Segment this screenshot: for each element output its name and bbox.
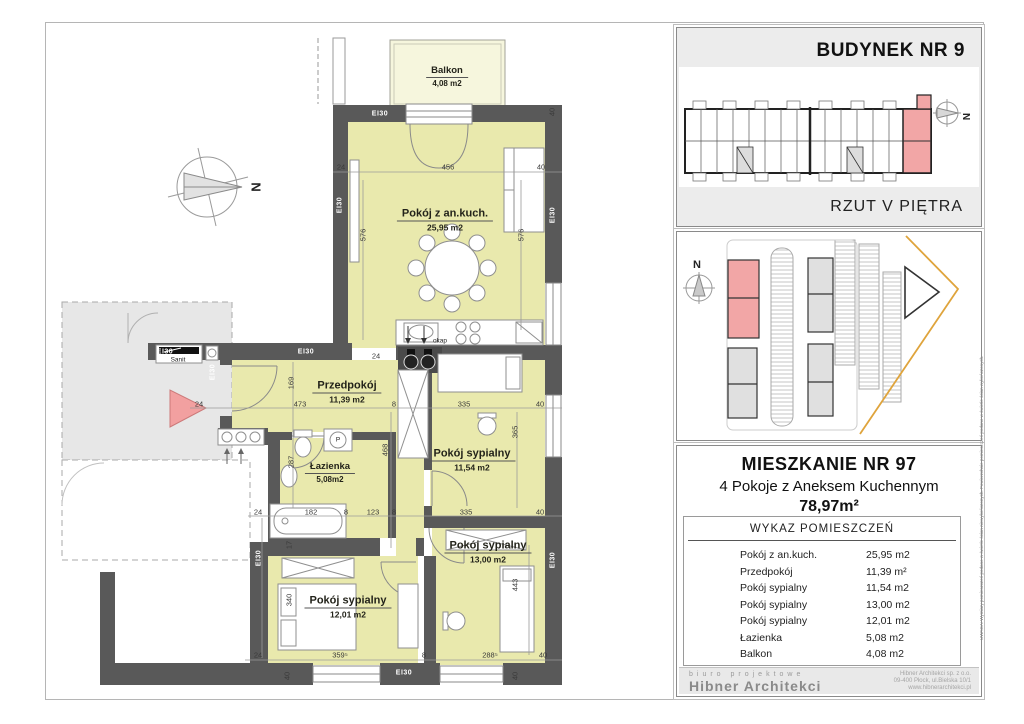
room-schedule-title: WYKAZ POMIESZCZEŃ — [684, 523, 960, 535]
apartment-total-area: 78,97m² — [677, 498, 981, 516]
room-label: Pokój z an.kuch.25,95 m2 — [397, 204, 493, 233]
dimension-label: 169 — [287, 377, 296, 390]
building-panel: BUDYNEK NR 9 — [676, 27, 982, 227]
address-line: www.hibnerarchitekci.pl — [894, 685, 971, 692]
triangle-building — [905, 267, 939, 318]
dimension-label: 335 — [460, 508, 473, 517]
room-label: Pokój sypialny12,01 m2 — [304, 591, 391, 620]
company-footer: biuro projektowe Hibner Architekci Hibne… — [679, 667, 979, 694]
room-row-area: 4,08 m2 — [866, 646, 936, 663]
dimension-label: 40 — [536, 400, 544, 409]
site-plan-thumbnail: N — [677, 232, 979, 438]
table-divider — [688, 540, 956, 541]
annotation-label: okap — [433, 338, 447, 345]
dimension-label: 40 — [283, 672, 292, 680]
room-label: Balkon4,08 m2 — [426, 60, 468, 88]
room-area: 11,54 m2 — [428, 463, 515, 473]
company-tagline: biuro projektowe — [689, 671, 804, 678]
building-plan-thumbnail: N — [679, 67, 979, 187]
room-row: Przedpokój11,39 m² — [684, 564, 960, 581]
dimension-label: 24 — [254, 651, 262, 660]
room-row-area: 11,54 m2 — [866, 580, 936, 597]
annotation-label: P — [336, 437, 340, 444]
room-name: Pokój sypialny — [304, 595, 391, 609]
dimension-label: 335 — [458, 400, 471, 409]
dimension-label: 123 — [367, 508, 380, 517]
apartment-title: MIESZKANIE NR 97 — [677, 454, 981, 475]
dimension-label: 8 — [344, 508, 348, 517]
legal-note-vertical: UWAGA: Wymiary pomieszczeń podano w świe… — [979, 634, 984, 640]
dimension-label: 24 — [337, 163, 345, 172]
dimension-label: 24 — [195, 400, 203, 409]
building-plan-area: N — [679, 67, 979, 187]
room-row: Pokój sypialny11,54 m2 — [684, 580, 960, 597]
dimension-label: 24 — [372, 352, 380, 361]
room-row: Łazienka5,08 m2 — [684, 630, 960, 647]
fire-rating-label: EI30 — [298, 349, 314, 356]
room-row-name: Balkon — [740, 646, 866, 663]
dimension-label: 8 — [392, 508, 396, 517]
room-row-area: 25,95 m2 — [866, 547, 936, 564]
floor-caption: RZUT V PIĘTRA — [830, 198, 963, 216]
dimension-label: 468 — [381, 444, 390, 457]
fire-rating-label: EI30 — [210, 364, 217, 380]
room-area: 5,08m2 — [305, 475, 355, 484]
dimension-label: 40 — [548, 108, 557, 116]
dimension-label: 17 — [285, 541, 294, 549]
room-row: Pokój sypialny13,00 m2 — [684, 597, 960, 614]
dimension-label: 365 — [511, 426, 520, 439]
floorplan-sheet: 2445640405765762424473833540169287468365… — [0, 0, 1024, 724]
room-label: Przedpokój11,39 m2 — [312, 376, 381, 405]
apartment-subtitle: 4 Pokoje z Aneksem Kuchennym — [677, 478, 981, 495]
building-title: BUDYNEK NR 9 — [816, 40, 965, 62]
dimension-label: 24 — [254, 508, 262, 517]
dimension-label: 576 — [517, 229, 526, 242]
fire-rating-label: EI30 — [157, 349, 173, 356]
building-compass-icon — [933, 99, 961, 127]
dimension-label: 8 — [422, 651, 426, 660]
room-area: 25,95 m2 — [397, 223, 493, 233]
building-compass-label: N — [960, 113, 971, 120]
compass-label: N — [249, 182, 264, 191]
room-area: 12,01 m2 — [304, 610, 391, 620]
room-label: Łazienka5,08m2 — [305, 456, 355, 484]
site-buildings — [728, 258, 939, 418]
room-name: Łazienka — [305, 461, 355, 474]
dimension-label: 288⁵ — [482, 651, 498, 660]
address-line: Hibner Architekci sp. z o.o. — [894, 671, 971, 678]
dimension-label: 576 — [359, 229, 368, 242]
address-line: 09-400 Płock, ul.Bielska 10/1 — [894, 678, 971, 685]
fire-rating-label: EI30 — [396, 670, 412, 677]
fire-rating-label: EI30 — [256, 550, 263, 566]
dimension-label: 443 — [511, 579, 520, 592]
plan-text-labels: 2445640405765762424473833540169287468365… — [0, 0, 672, 724]
dimension-label: 8 — [392, 400, 396, 409]
apartment-info-panel: MIESZKANIE NR 97 4 Pokoje z Aneksem Kuch… — [676, 445, 982, 697]
dimension-label: 359⁵ — [332, 651, 348, 660]
annotation-label: Sanit — [171, 357, 186, 364]
site-compass — [683, 272, 715, 304]
room-name: Pokój z an.kuch. — [397, 208, 493, 222]
room-row-area: 11,39 m² — [866, 564, 936, 581]
room-row-area: 12,01 m2 — [866, 613, 936, 630]
room-row: Pokój sypialny12,01 m2 — [684, 613, 960, 630]
dimension-label: 287 — [287, 456, 296, 469]
room-area: 11,39 m2 — [312, 395, 381, 405]
dimension-label: 40 — [537, 163, 545, 172]
dimension-label: 340 — [285, 594, 294, 607]
dimension-label: 456 — [442, 163, 455, 172]
site-plan-panel: N — [676, 231, 982, 441]
room-label: Pokój sypialny13,00 m2 — [444, 536, 531, 565]
highlighted-building — [728, 260, 759, 338]
fire-rating-label: EI30 — [550, 207, 557, 223]
dimension-label: 182 — [305, 508, 318, 517]
company-name: Hibner Architekci — [689, 678, 821, 694]
room-schedule-table: WYKAZ POMIESZCZEŃ Pokój z an.kuch.25,95 … — [683, 516, 961, 666]
room-row-name: Pokój sypialny — [740, 597, 866, 614]
company-address: Hibner Architekci sp. z o.o.09-400 Płock… — [894, 671, 971, 692]
apartment-header: MIESZKANIE NR 97 4 Pokoje z Aneksem Kuch… — [677, 454, 981, 516]
dimension-label: 40 — [511, 672, 520, 680]
room-row-name: Pokój sypialny — [740, 613, 866, 630]
room-schedule-rows: Pokój z an.kuch.25,95 m2Przedpokój11,39 … — [684, 547, 960, 663]
highlighted-unit — [903, 95, 931, 173]
room-row-name: Pokój sypialny — [740, 580, 866, 597]
room-label: Pokój sypialny11,54 m2 — [428, 444, 515, 473]
room-name: Przedpokój — [312, 380, 381, 394]
room-row-name: Pokój z an.kuch. — [740, 547, 866, 564]
room-area: 13,00 m2 — [444, 555, 531, 565]
room-row-area: 13,00 m2 — [866, 597, 936, 614]
room-row: Pokój z an.kuch.25,95 m2 — [684, 547, 960, 564]
room-row-name: Łazienka — [740, 630, 866, 647]
room-row: Balkon4,08 m2 — [684, 646, 960, 663]
site-compass-label: N — [693, 259, 701, 271]
fire-rating-label: EI30 — [372, 111, 388, 118]
room-area: 4,08 m2 — [426, 79, 468, 88]
dimension-label: 40 — [536, 508, 544, 517]
room-name: Pokój sypialny — [444, 540, 531, 554]
room-name: Pokój sypialny — [428, 448, 515, 462]
dimension-label: 473 — [294, 400, 307, 409]
dimension-label: 40 — [539, 651, 547, 660]
room-row-name: Przedpokój — [740, 564, 866, 581]
room-row-area: 5,08 m2 — [866, 630, 936, 647]
fire-rating-label: EI30 — [337, 197, 344, 213]
apartment-floor-plan: 2445640405765762424473833540169287468365… — [0, 0, 672, 724]
fire-rating-label: EI30 — [550, 552, 557, 568]
room-name: Balkon — [426, 65, 468, 78]
